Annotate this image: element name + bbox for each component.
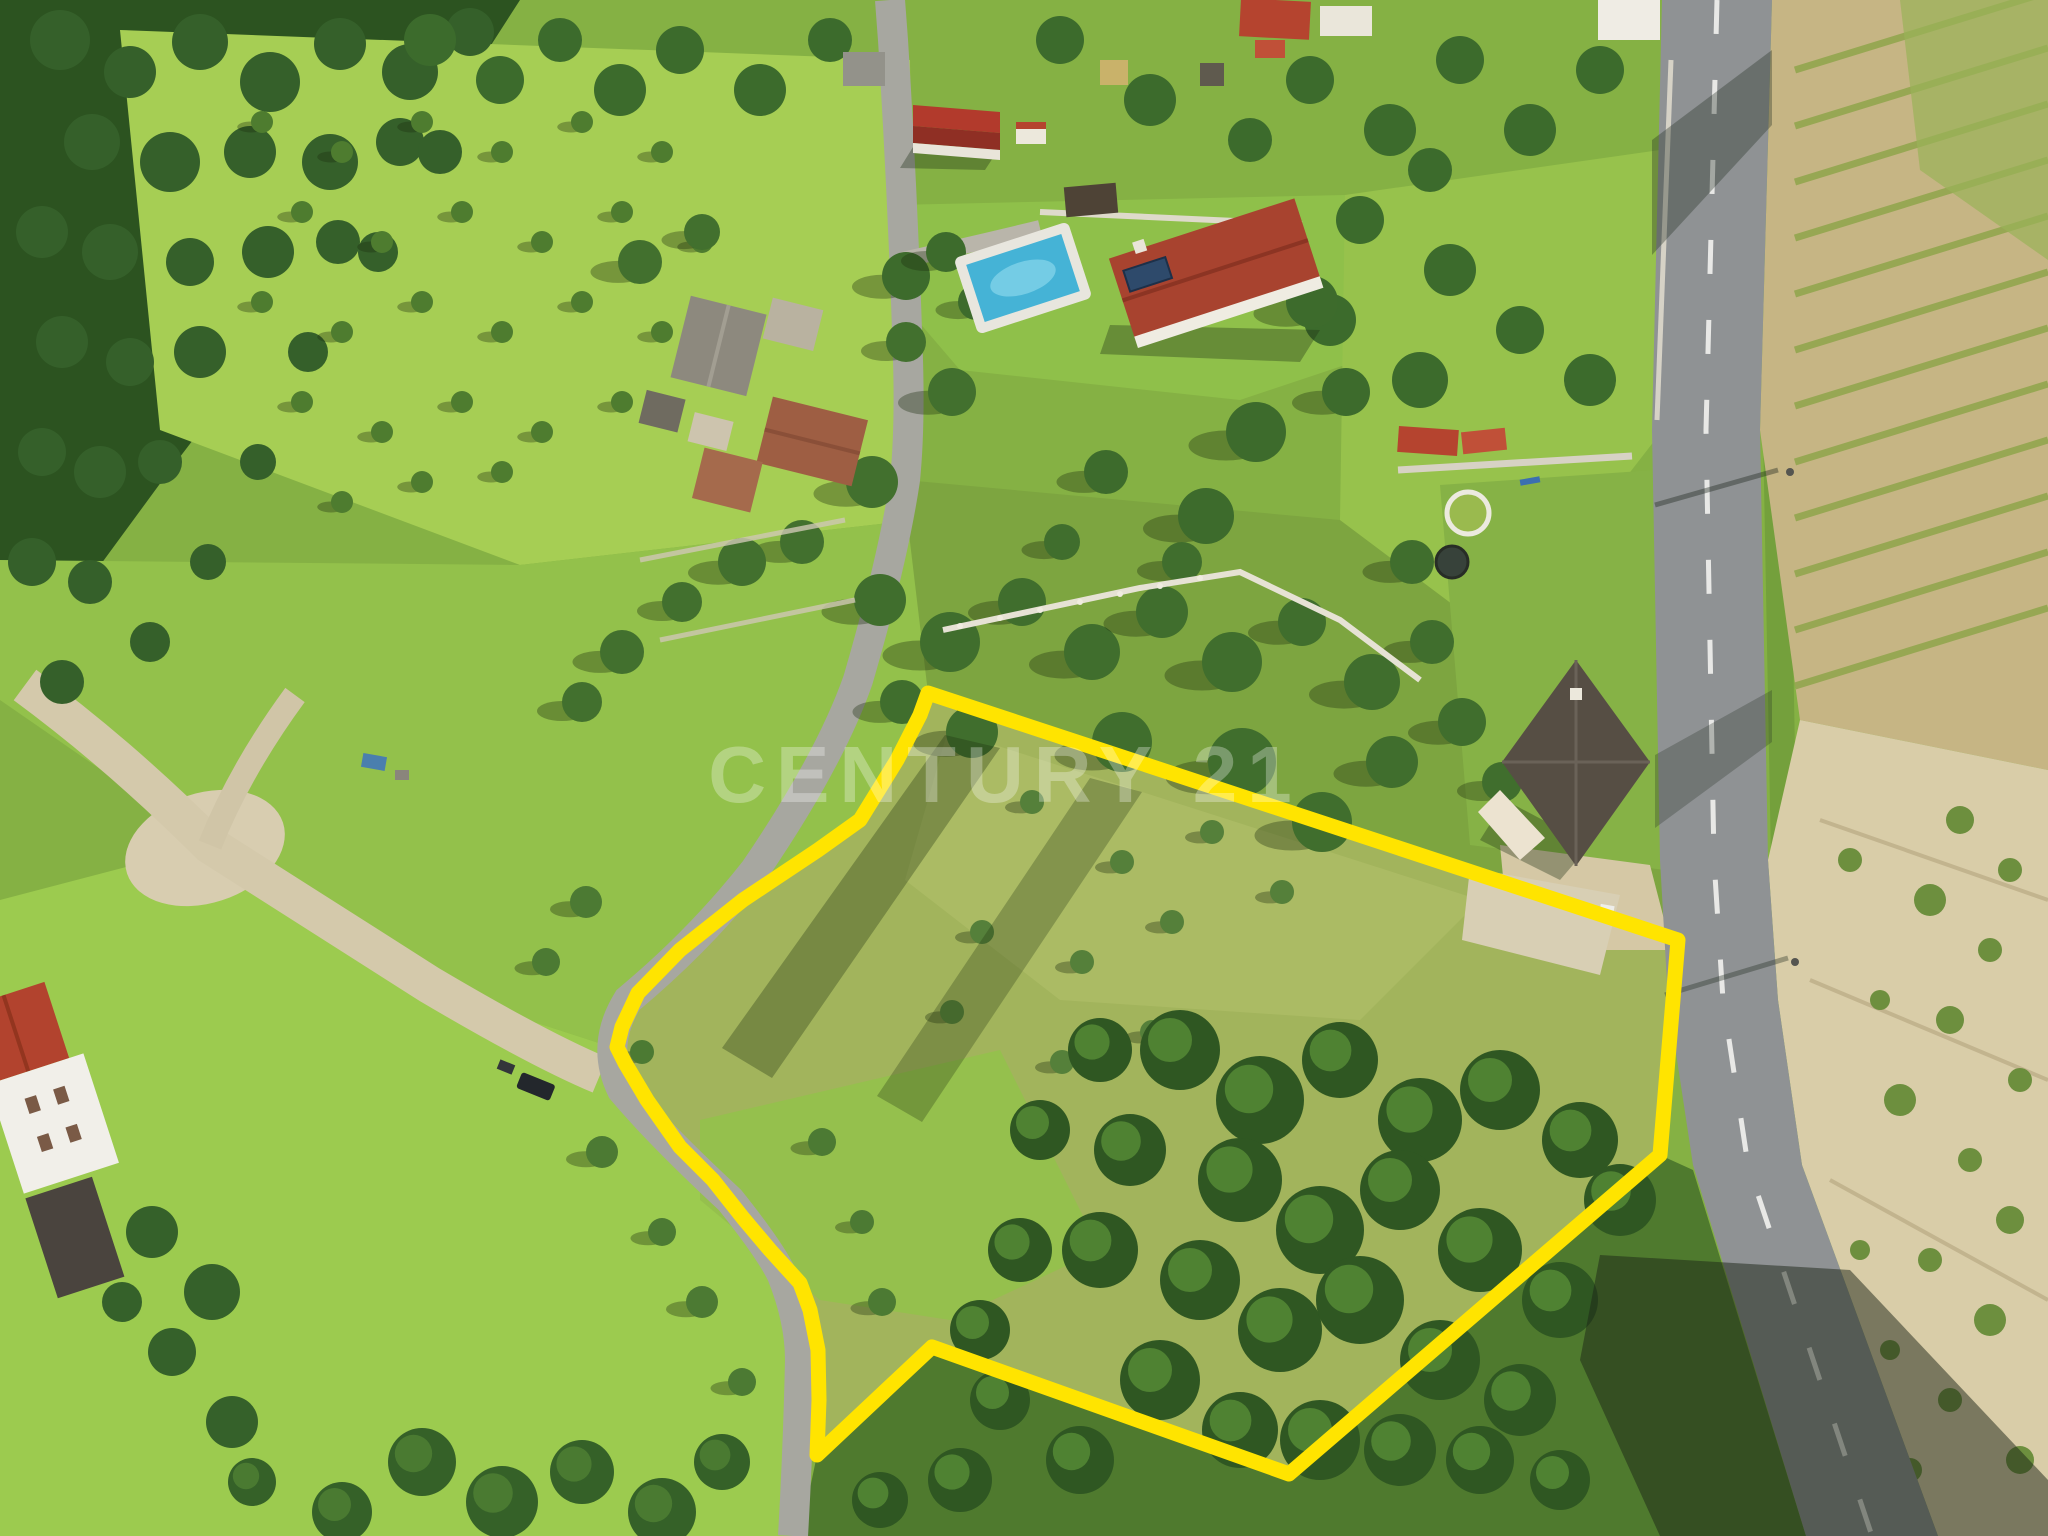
top-red-roof-small [1255,40,1285,58]
dark-shed [1200,63,1224,86]
top-red-roof [1239,0,1311,40]
compost-patch [1064,183,1118,217]
power-pole [1786,468,1794,476]
ruin [1100,60,1128,85]
chimney [1570,688,1582,700]
gray-shed [843,52,885,86]
red-barn [900,105,1000,170]
small-house-roof [1016,122,1046,129]
trampoline [1436,546,1468,578]
scene: CENTURY 21 [0,0,2048,1536]
watermark: CENTURY 21 [708,730,1301,819]
neighbor-red-roof [1461,428,1507,454]
aerial-photo: CENTURY 21 [0,0,2048,1536]
junk-pile [395,770,409,780]
top-white-roof [1320,6,1372,36]
neighbor-red-roof [1397,426,1459,456]
round-pool [1447,492,1489,534]
white-building-top [1598,0,1660,40]
power-pole [1791,958,1799,966]
